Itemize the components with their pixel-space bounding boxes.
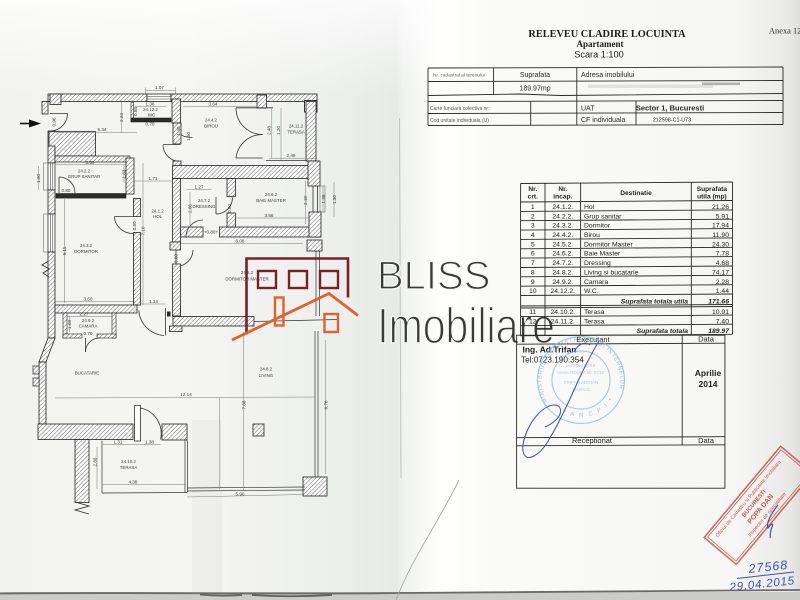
svg-text:1: 1 — [531, 204, 535, 211]
svg-text:Camara: Camara — [584, 279, 608, 286]
svg-text:Nr. cadastral al terenului: Nr. cadastral al terenului — [433, 73, 485, 79]
svg-text:3.56: 3.56 — [265, 213, 274, 218]
svg-text:171.66: 171.66 — [708, 299, 729, 306]
svg-text:24.30: 24.30 — [712, 241, 729, 248]
svg-text:Living si bucatarie: Living si bucatarie — [584, 269, 639, 276]
svg-text:BUCATARIE: BUCATARIE — [75, 371, 100, 376]
svg-text:3.50: 3.50 — [86, 160, 95, 165]
svg-text:2.28: 2.28 — [716, 279, 729, 286]
svg-text:WC: WC — [148, 113, 155, 118]
svg-text:24.6.2.: 24.6.2. — [552, 251, 573, 258]
svg-text:BIROU: BIROU — [204, 124, 218, 129]
svg-text:24.2.2: 24.2.2 — [78, 169, 91, 174]
svg-text:10.91: 10.91 — [712, 309, 729, 316]
svg-text:Terasa: Terasa — [584, 318, 605, 325]
svg-text:Dressing: Dressing — [584, 260, 611, 267]
svg-text:Baie Master: Baie Master — [584, 251, 621, 258]
svg-text:212598-C1-U73: 212598-C1-U73 — [653, 118, 691, 124]
svg-text:2.24: 2.24 — [119, 113, 124, 122]
svg-text:0.96: 0.96 — [51, 117, 56, 126]
svg-text:Carte funciara colectiva nr:: Carte funciara colectiva nr: — [430, 106, 489, 112]
svg-text:24.1.2: 24.1.2 — [151, 209, 164, 214]
svg-text:Suprafata: Suprafata — [520, 72, 550, 79]
svg-text:1.30: 1.30 — [332, 195, 337, 204]
svg-text:Birou: Birou — [584, 232, 600, 239]
svg-text:24.5.2.: 24.5.2. — [552, 241, 573, 248]
svg-text:6.76: 6.76 — [323, 400, 328, 409]
svg-text:BLISS: BLISS — [377, 254, 490, 298]
svg-text:7.88: 7.88 — [242, 400, 247, 409]
svg-text:+0.80+: +0.80+ — [204, 229, 219, 234]
svg-text:1.44: 1.44 — [716, 288, 729, 295]
svg-text:Hol: Hol — [584, 204, 595, 211]
svg-text:LIVING: LIVING — [259, 373, 274, 378]
svg-text:Nr.: Nr. — [558, 186, 567, 193]
svg-text:Apartament: Apartament — [577, 39, 624, 49]
svg-text:1.31: 1.31 — [114, 439, 123, 444]
svg-text:24.12.2: 24.12.2 — [143, 107, 158, 112]
svg-text:24.10.2: 24.10.2 — [121, 459, 136, 464]
svg-text:12.14: 12.14 — [180, 392, 192, 397]
svg-text:Receptionat: Receptionat — [572, 436, 613, 445]
svg-text:5.90: 5.90 — [236, 491, 245, 496]
svg-text:5.34: 5.34 — [98, 127, 107, 132]
svg-text:0.68: 0.68 — [133, 107, 138, 116]
svg-text:Anexa 12: Anexa 12 — [769, 27, 800, 36]
svg-text:Dormitor: Dormitor — [584, 223, 611, 230]
svg-text:189.97mp: 189.97mp — [519, 86, 550, 93]
svg-text:UAT: UAT — [581, 106, 595, 113]
svg-text:24.3.2: 24.3.2 — [80, 243, 93, 248]
svg-text:2.18: 2.18 — [303, 196, 308, 205]
svg-text:24.12.2.: 24.12.2. — [551, 288, 576, 295]
svg-text:0.80: 0.80 — [132, 221, 137, 230]
svg-text:1.50: 1.50 — [186, 132, 191, 141]
svg-text:24.2.2.: 24.2.2. — [552, 213, 573, 220]
svg-text:5: 5 — [531, 241, 535, 248]
svg-text:Aprilie: Aprilie — [695, 368, 722, 378]
svg-text:1.03: 1.03 — [67, 320, 72, 329]
svg-text:11: 11 — [529, 309, 536, 316]
svg-text:2.27: 2.27 — [80, 311, 89, 316]
svg-text:Adresa imobilului: Adresa imobilului — [581, 72, 635, 79]
svg-text:7.40: 7.40 — [716, 318, 729, 325]
svg-text:5.91: 5.91 — [716, 213, 729, 220]
svg-text:Cod unitate individuala (U): Cod unitate individuala (U) — [430, 118, 489, 124]
svg-text:24.4.2: 24.4.2 — [205, 118, 218, 123]
svg-text:24.7.2.: 24.7.2. — [552, 260, 573, 267]
svg-text:AUTORIZARE: AUTORIZARE — [566, 363, 596, 368]
svg-text:9: 9 — [531, 279, 535, 286]
svg-text:7: 7 — [531, 260, 535, 267]
svg-text:8: 8 — [531, 269, 535, 276]
svg-text:2: 2 — [531, 213, 535, 220]
svg-text:0.80: 0.80 — [62, 188, 71, 193]
svg-text:Suprafata totala: Suprafata totala — [637, 328, 689, 335]
svg-text:4.68: 4.68 — [716, 260, 729, 267]
svg-text:1.38: 1.38 — [145, 439, 154, 444]
svg-text:6.08: 6.08 — [236, 238, 245, 243]
svg-text:Nr.: Nr. — [528, 186, 537, 193]
svg-text:24.11.2: 24.11.2 — [289, 124, 304, 129]
svg-text:crt.: crt. — [528, 194, 538, 201]
svg-text:24.1.2.: 24.1.2. — [552, 204, 573, 211]
svg-text:24.8.2.: 24.8.2. — [552, 269, 573, 276]
svg-text:0.80: 0.80 — [227, 204, 232, 213]
svg-text:24.11.2.: 24.11.2. — [551, 318, 575, 325]
svg-text:0.70: 0.70 — [84, 331, 93, 336]
svg-text:1.71: 1.71 — [149, 176, 158, 181]
svg-text:17.94: 17.94 — [712, 223, 729, 230]
svg-text:2.48: 2.48 — [266, 126, 271, 135]
svg-text:Suprafata totala utila: Suprafata totala utila — [621, 299, 688, 306]
svg-text:1.14: 1.14 — [149, 299, 158, 304]
svg-text:24.9.2: 24.9.2 — [82, 318, 95, 323]
svg-text:0.80: 0.80 — [173, 254, 178, 263]
svg-text:1.38: 1.38 — [321, 194, 326, 203]
svg-text:12: 12 — [529, 318, 537, 325]
svg-text:1.07: 1.07 — [155, 85, 164, 90]
svg-text:24.4.2.: 24.4.2. — [552, 232, 573, 239]
svg-text:1.63: 1.63 — [122, 169, 127, 178]
svg-text:4.38: 4.38 — [129, 479, 138, 484]
svg-text:7.10: 7.10 — [141, 226, 146, 235]
svg-text:24.7.2: 24.7.2 — [198, 198, 211, 203]
svg-text:24.3.2.: 24.3.2. — [552, 223, 573, 230]
svg-text:Data: Data — [698, 436, 715, 445]
svg-text:incap.: incap. — [553, 194, 572, 201]
svg-text:BAIE MASTER: BAIE MASTER — [256, 198, 286, 203]
svg-text:DRESSING: DRESSING — [193, 204, 217, 209]
svg-text:5.11: 5.11 — [62, 246, 67, 255]
svg-text:3.64: 3.64 — [209, 101, 218, 106]
svg-text:Grup sanitar: Grup sanitar — [584, 213, 622, 220]
svg-text:21.26: 21.26 — [712, 204, 729, 211]
svg-text:74.17: 74.17 — [712, 269, 729, 276]
svg-text:2.68: 2.68 — [92, 457, 97, 466]
svg-text:7.78: 7.78 — [716, 251, 729, 258]
svg-text:24.9.2.: 24.9.2. — [552, 279, 573, 286]
svg-text:Terasa: Terasa — [584, 309, 605, 316]
svg-text:1.20: 1.20 — [276, 126, 281, 135]
svg-text:4: 4 — [531, 232, 535, 239]
svg-text:TERASA: TERASA — [120, 465, 138, 470]
svg-text:TERASA: TERASA — [287, 130, 305, 135]
svg-text:Suprafata: Suprafata — [697, 186, 728, 193]
svg-text:TRIFAN ADRIAN: TRIFAN ADRIAN — [564, 380, 599, 385]
svg-text:10: 10 — [529, 288, 537, 295]
svg-text:24.6.2: 24.6.2 — [265, 192, 278, 197]
svg-text:3: 3 — [531, 223, 535, 230]
svg-text:HOL: HOL — [153, 214, 163, 219]
svg-text:2.49: 2.49 — [287, 153, 296, 158]
svg-text:Sector 1, Bucuresti: Sector 1, Bucuresti — [636, 104, 704, 113]
svg-text:1.27: 1.27 — [195, 184, 204, 189]
svg-text:Scara 1:100: Scara 1:100 — [574, 50, 624, 60]
svg-text:6: 6 — [531, 251, 535, 258]
svg-text:1.36: 1.36 — [146, 101, 155, 106]
svg-text:11.90: 11.90 — [712, 232, 729, 239]
svg-text:utila (mp): utila (mp) — [697, 194, 727, 201]
svg-text:24.10.2.: 24.10.2. — [551, 309, 576, 316]
svg-text:DORMITOR: DORMITOR — [74, 249, 98, 254]
svg-text:Dormitor Master: Dormitor Master — [584, 241, 633, 248]
svg-text:0.70: 0.70 — [146, 121, 155, 126]
svg-text:W.C.: W.C. — [584, 288, 599, 295]
svg-text:2014: 2014 — [699, 379, 718, 389]
svg-text:CAMARA: CAMARA — [79, 324, 98, 329]
svg-text:CF individuala: CF individuala — [581, 117, 625, 124]
svg-text:GRUP SANITAR: GRUP SANITAR — [68, 174, 101, 179]
svg-text:Data: Data — [698, 335, 715, 344]
svg-text:1.30: 1.30 — [176, 126, 181, 135]
svg-text:24.8.2: 24.8.2 — [260, 367, 273, 372]
svg-text:Destinatie: Destinatie — [620, 190, 652, 197]
svg-text:3.50: 3.50 — [84, 296, 93, 301]
svg-text:1.00: 1.00 — [36, 174, 41, 183]
